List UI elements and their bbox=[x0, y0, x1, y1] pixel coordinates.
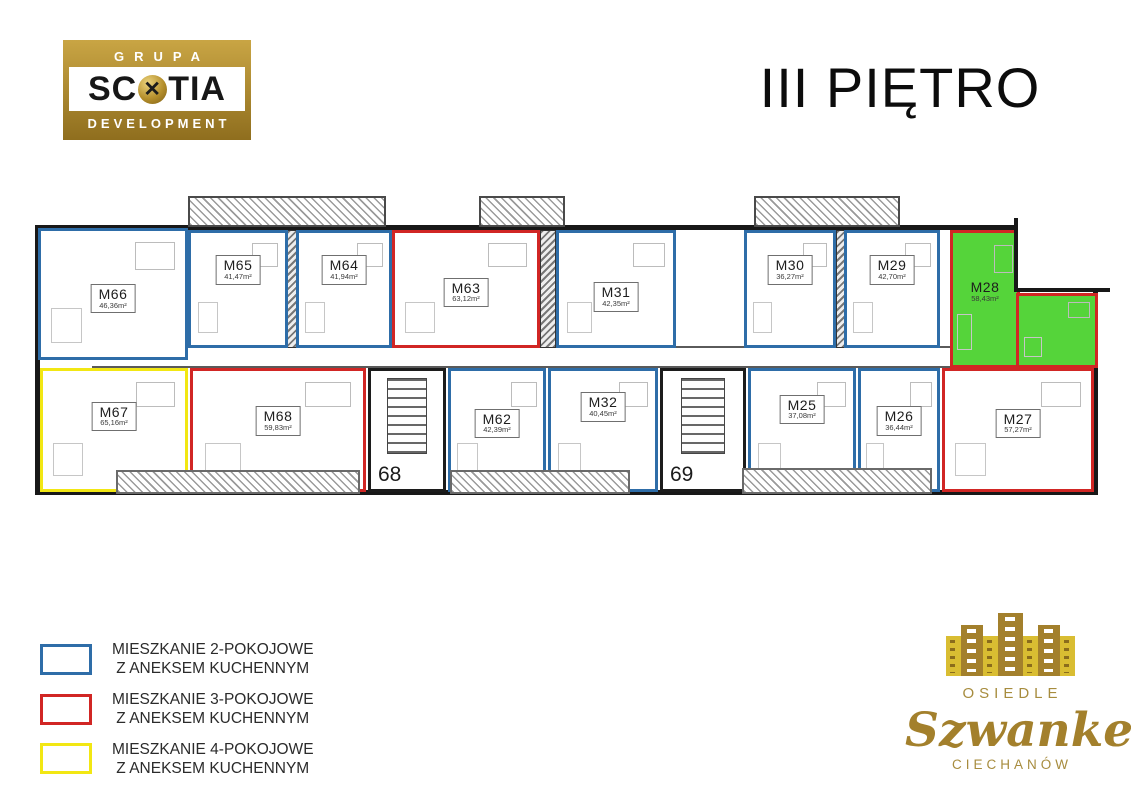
apartment-area: 36,27m² bbox=[776, 273, 805, 281]
apartment-label: M6646,36m² bbox=[91, 284, 136, 314]
apartment-number: M28 bbox=[971, 280, 1000, 295]
logo-scotia-text: SCTIA bbox=[69, 67, 245, 111]
apartment-area: 59,83m² bbox=[264, 424, 293, 432]
apartment-number: M66 bbox=[99, 287, 128, 302]
legend-item-4-rooms: MIESZKANIE 4-POKOJOWEZ ANEKSEM KUCHENNYM bbox=[40, 740, 314, 779]
apartment-number: M29 bbox=[878, 258, 907, 273]
page: GRUPA SCTIA DEVELOPMENT III PIĘTRO M6646… bbox=[0, 0, 1131, 800]
apartment-area: 36,44m² bbox=[885, 424, 914, 432]
legend: MIESZKANIE 2-POKOJOWEZ ANEKSEM KUCHENNYM… bbox=[40, 640, 314, 789]
balcony-hatch bbox=[754, 196, 900, 227]
apartment-M28[interactable]: M2858,43m² bbox=[950, 230, 1020, 368]
apartment-number: M31 bbox=[602, 285, 631, 300]
apartment-area: 46,36m² bbox=[99, 302, 128, 310]
balcony-hatch bbox=[188, 196, 386, 227]
apartment-number: M25 bbox=[788, 398, 817, 413]
apartment-number: M68 bbox=[264, 409, 293, 424]
logo-development-text: DEVELOPMENT bbox=[69, 111, 245, 135]
scotia-development-logo: GRUPA SCTIA DEVELOPMENT bbox=[63, 40, 251, 140]
apartment-M65[interactable]: M6541,47m² bbox=[188, 230, 288, 348]
apartment-label: M6859,83m² bbox=[256, 406, 301, 436]
legend-item-3-rooms: MIESZKANIE 3-POKOJOWEZ ANEKSEM KUCHENNYM bbox=[40, 690, 314, 729]
apartment-label: M3142,35m² bbox=[594, 282, 639, 312]
brand-osiedle: OSIEDLE bbox=[905, 685, 1115, 702]
apartment-number: M62 bbox=[483, 412, 512, 427]
apartment-area: 42,70m² bbox=[878, 273, 907, 281]
brand-city: CIECHANÓW bbox=[905, 757, 1115, 772]
apartment-area: 57,27m² bbox=[1004, 426, 1033, 434]
apartment-M63[interactable]: M6363,12m² bbox=[392, 230, 540, 348]
buildings-icon bbox=[905, 612, 1115, 676]
balcony-hatch bbox=[450, 470, 630, 494]
apartment-label: M3240,45m² bbox=[581, 392, 626, 422]
apartment-area: 58,43m² bbox=[971, 295, 1000, 303]
legend-color-yellow bbox=[40, 743, 92, 774]
apartment-label: M2757,27m² bbox=[996, 409, 1041, 439]
apartment-label: M2858,43m² bbox=[964, 278, 1007, 306]
apartment-M64[interactable]: M6441,94m² bbox=[296, 230, 392, 348]
balcony-hatch bbox=[479, 196, 565, 227]
corridor bbox=[92, 346, 1093, 368]
logo-grupa-text: GRUPA bbox=[69, 45, 245, 67]
apartment-number: M30 bbox=[776, 258, 805, 273]
scotia-globe-icon bbox=[138, 75, 167, 104]
page-title: III PIĘTRO bbox=[700, 55, 1100, 120]
stairwell-number: 68 bbox=[378, 463, 401, 487]
apartment-label: M2537,08m² bbox=[780, 395, 825, 425]
apartment-area: 37,08m² bbox=[788, 412, 817, 420]
apartment-M28[interactable] bbox=[1016, 293, 1098, 368]
apartment-M27[interactable]: M2757,27m² bbox=[942, 368, 1094, 492]
apartment-label: M6363,12m² bbox=[444, 278, 489, 308]
stairs-icon bbox=[387, 378, 427, 454]
apartment-number: M64 bbox=[330, 258, 359, 273]
building-notch bbox=[1014, 218, 1110, 292]
stairwell-68: 68 bbox=[368, 368, 446, 492]
apartment-number: M65 bbox=[224, 258, 253, 273]
apartment-area: 42,39m² bbox=[483, 426, 512, 434]
apartment-M31[interactable]: M3142,35m² bbox=[556, 230, 676, 348]
apartment-area: 40,45m² bbox=[589, 410, 618, 418]
apartment-M66[interactable]: M6646,36m² bbox=[38, 228, 188, 360]
apartment-label: M6242,39m² bbox=[475, 409, 520, 439]
apartment-area: 41,47m² bbox=[224, 273, 253, 281]
legend-color-blue bbox=[40, 644, 92, 675]
apartment-M30[interactable]: M3036,27m² bbox=[744, 230, 836, 348]
apartment-area: 42,35m² bbox=[602, 300, 631, 308]
apartment-number: M67 bbox=[100, 405, 129, 420]
stairs-icon bbox=[681, 378, 726, 454]
balcony-hatch bbox=[742, 468, 932, 494]
stairwell-69: 69 bbox=[660, 368, 746, 492]
apartment-label: M3036,27m² bbox=[768, 255, 813, 285]
apartment-number: M63 bbox=[452, 281, 481, 296]
legend-color-red bbox=[40, 694, 92, 725]
wall-shaft bbox=[540, 230, 556, 348]
balcony-hatch bbox=[116, 470, 360, 494]
stairwell-number: 69 bbox=[670, 463, 693, 487]
apartment-M29[interactable]: M2942,70m² bbox=[844, 230, 940, 348]
apartment-number: M26 bbox=[885, 409, 914, 424]
apartment-number: M27 bbox=[1004, 412, 1033, 427]
estate-brand: OSIEDLE Szwanke CIECHANÓW bbox=[905, 612, 1115, 772]
apartment-label: M2942,70m² bbox=[870, 255, 915, 285]
legend-item-2-rooms: MIESZKANIE 2-POKOJOWEZ ANEKSEM KUCHENNYM bbox=[40, 640, 314, 679]
apartment-label: M2636,44m² bbox=[877, 406, 922, 436]
brand-name: Szwanke bbox=[905, 706, 1115, 755]
apartment-area: 63,12m² bbox=[452, 295, 481, 303]
apartment-label: M6765,16m² bbox=[92, 402, 137, 432]
apartment-number: M32 bbox=[589, 395, 618, 410]
apartment-area: 41,94m² bbox=[330, 273, 359, 281]
apartment-label: M6541,47m² bbox=[216, 255, 261, 285]
apartment-label: M6441,94m² bbox=[322, 255, 367, 285]
apartment-area: 65,16m² bbox=[100, 419, 129, 427]
